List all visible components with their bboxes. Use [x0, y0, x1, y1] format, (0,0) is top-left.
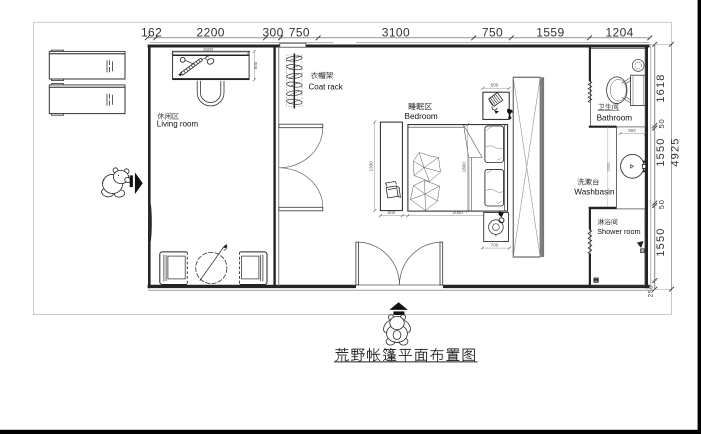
svg-text:1550: 1550: [655, 137, 667, 166]
svg-text:750: 750: [482, 26, 503, 40]
svg-text:Shower room: Shower room: [597, 227, 640, 236]
svg-text:Bedroom: Bedroom: [405, 112, 438, 121]
svg-text:1550: 1550: [655, 227, 667, 256]
svg-text:1300: 1300: [368, 161, 373, 172]
svg-text:2200: 2200: [197, 26, 225, 40]
svg-text:600: 600: [253, 61, 258, 69]
svg-text:1550: 1550: [606, 162, 611, 172]
svg-text:Bathroom: Bathroom: [597, 114, 633, 123]
svg-text:500: 500: [491, 83, 499, 88]
svg-text:700: 700: [491, 242, 499, 247]
svg-text:300: 300: [262, 26, 283, 40]
svg-text:600: 600: [388, 210, 396, 215]
svg-text:50: 50: [657, 199, 666, 209]
svg-text:Coat rack: Coat rack: [309, 83, 344, 92]
svg-text:750: 750: [289, 26, 310, 40]
svg-text:Living room: Living room: [157, 119, 199, 128]
svg-text:50: 50: [657, 119, 666, 129]
svg-text:3100: 3100: [382, 26, 410, 40]
svg-text:Washbasin: Washbasin: [574, 188, 615, 197]
svg-text:1618: 1618: [655, 73, 667, 102]
svg-text:1559: 1559: [536, 26, 564, 40]
svg-text:1800: 1800: [461, 162, 466, 173]
svg-text:1204: 1204: [605, 26, 633, 40]
svg-text:1500: 1500: [203, 47, 214, 52]
svg-text:162: 162: [141, 26, 162, 40]
svg-text:4925: 4925: [669, 137, 681, 166]
svg-text:500: 500: [628, 128, 636, 133]
